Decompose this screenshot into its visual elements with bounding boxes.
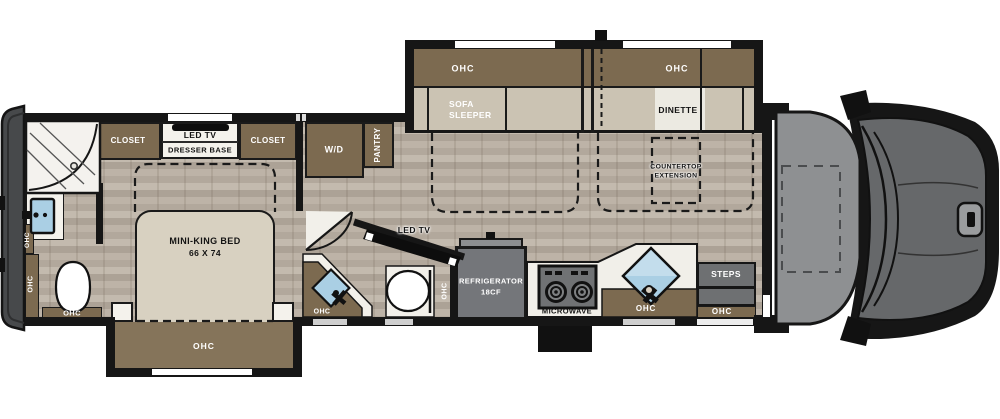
rv-floorplan: CLOSET LED TV DRESSER BASE CLOSET W/D PA…	[0, 0, 1000, 419]
sofa-armrest-divider	[427, 88, 429, 130]
mini-king-bed	[135, 210, 275, 322]
slide-wall-left	[405, 40, 414, 133]
dresser-divider	[162, 141, 238, 143]
sofa-section-divider	[505, 88, 507, 130]
wall-bottom-a	[18, 317, 108, 326]
countertop-label-line1: COUNTERTOP	[650, 164, 701, 173]
refrigerator-top	[459, 238, 523, 248]
bed-title: MINI-KING BED	[169, 235, 240, 247]
bedroom-wall	[296, 122, 303, 211]
window-dinette	[623, 41, 731, 48]
dinette-divider	[700, 49, 702, 133]
sofa-sleeper-label: SOFA SLEEPER	[449, 99, 491, 121]
half-bath-wall	[450, 253, 458, 317]
bed-label: MINI-KING BED 66 X 74	[169, 235, 240, 259]
mirror-bottom	[840, 316, 871, 346]
closet-left-label: CLOSET	[111, 137, 146, 145]
slide-section-wall-b	[591, 49, 594, 133]
steps-label: STEPS	[711, 270, 741, 279]
step-tread-divider	[699, 286, 754, 289]
grille-emblem	[958, 203, 982, 236]
dinette-ohc-label: OHC	[666, 65, 689, 74]
living-tv-label: LED TV	[398, 226, 431, 235]
window-bottom-b	[385, 319, 413, 325]
bed-slide-ohc-label: OHC	[193, 342, 215, 351]
entry-door-gap	[697, 319, 753, 325]
refrigerator-label: REFRIGERATOR 18CF	[459, 277, 523, 298]
window-kitchen	[623, 319, 675, 325]
fridge-label-line1: REFRIGERATOR	[459, 277, 523, 288]
dinette-label: DINETTE	[658, 106, 697, 115]
half-bath-ohc-vanity-label: OHC	[314, 309, 331, 316]
entry-side-gap	[763, 295, 770, 317]
cab	[776, 90, 999, 346]
window-bedroom	[168, 114, 232, 121]
fridge-label-line2: 18CF	[459, 287, 523, 298]
bed-size: 66 X 74	[169, 247, 240, 259]
wall-slit-a	[296, 114, 300, 121]
wall-slit-b	[302, 114, 306, 121]
refrigerator-hinge	[486, 232, 495, 239]
rear-bath-ohc-base-label: OHC	[63, 309, 81, 317]
dinette-armrest-divider	[742, 88, 744, 130]
nightstand-right	[272, 302, 294, 322]
entry-ohc-label: OHC	[712, 308, 732, 316]
sofa-label-line1: SOFA	[449, 99, 491, 110]
cab-bunk-outline	[782, 166, 840, 272]
kitchen-ohc-label: OHC	[636, 305, 656, 313]
windshield-line	[862, 126, 886, 312]
cab-join-bottom	[754, 315, 789, 333]
sofa-ohc-label: OHC	[452, 65, 475, 74]
mirror-top	[840, 90, 871, 120]
rear-bath-wall	[96, 183, 103, 244]
cab-roof	[776, 112, 860, 324]
sofa-label-line2: SLEEPER	[449, 110, 491, 121]
closet-right-label: CLOSET	[251, 137, 286, 145]
window-sofa	[455, 41, 555, 48]
window-bottom-a	[313, 319, 347, 325]
dresser-label: DRESSER BASE	[168, 146, 232, 154]
countertop-label-line2: EXTENSION	[650, 172, 701, 181]
bedroom-tv-label: LED TV	[184, 131, 217, 140]
slide-section-wall-a	[581, 49, 584, 133]
slideout-front-edge	[414, 130, 754, 133]
rear-bath-ohc-cabinet-label: OHC	[28, 275, 35, 292]
window-bed-slide	[152, 369, 252, 375]
washer-dryer-label: W/D	[325, 146, 344, 155]
rear-bath-ohc-vanity-label: OHC	[25, 232, 32, 248]
countertop-extension-label: COUNTERTOP EXTENSION	[650, 164, 701, 181]
microwave-label: MICROWAVE	[542, 307, 592, 315]
half-bath-ohc-cabinet-label: OHC	[442, 282, 449, 299]
cab-join-top	[754, 103, 789, 120]
pantry-label: PANTRY	[374, 128, 382, 163]
wall-rear	[18, 113, 26, 326]
